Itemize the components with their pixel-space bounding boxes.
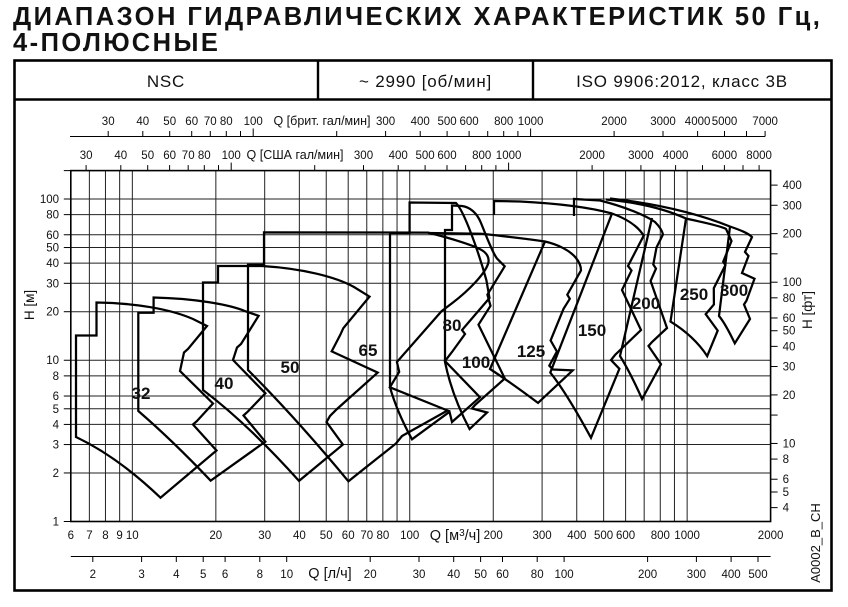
svg-text:30: 30	[102, 116, 115, 128]
svg-text:10: 10	[783, 439, 796, 451]
svg-text:4000: 4000	[663, 150, 689, 162]
svg-text:500: 500	[748, 569, 767, 581]
svg-text:200: 200	[638, 569, 657, 581]
svg-text:40: 40	[46, 258, 59, 270]
svg-text:70: 70	[182, 150, 195, 162]
svg-text:~ 2990 [об/мин]: ~ 2990 [об/мин]	[359, 72, 492, 91]
svg-text:50: 50	[46, 243, 59, 255]
svg-text:60: 60	[185, 116, 198, 128]
svg-text:1000: 1000	[674, 530, 700, 542]
svg-text:100: 100	[555, 569, 574, 581]
svg-text:4: 4	[783, 503, 790, 515]
svg-text:400: 400	[389, 150, 408, 162]
svg-text:30: 30	[413, 569, 426, 581]
svg-text:400: 400	[722, 569, 741, 581]
svg-text:40: 40	[215, 374, 234, 393]
svg-text:70: 70	[360, 530, 373, 542]
svg-text:65: 65	[359, 341, 378, 360]
svg-text:4-ПОЛЮСНЫЕ: 4-ПОЛЮСНЫЕ	[13, 29, 220, 57]
svg-text:3000: 3000	[628, 150, 654, 162]
svg-text:100: 100	[783, 277, 802, 289]
svg-text:125: 125	[517, 342, 545, 361]
svg-text:H [фт]: H [фт]	[800, 291, 815, 329]
svg-text:80: 80	[783, 293, 796, 305]
svg-text:7000: 7000	[752, 116, 778, 128]
svg-text:600: 600	[437, 150, 456, 162]
svg-text:80: 80	[531, 569, 544, 581]
svg-text:2: 2	[53, 468, 59, 480]
svg-text:6: 6	[783, 474, 789, 486]
svg-text:8: 8	[53, 371, 59, 383]
svg-text:9: 9	[116, 530, 122, 542]
svg-text:10: 10	[126, 530, 139, 542]
svg-text:2000: 2000	[758, 530, 784, 542]
svg-text:Q [м3/ч]: Q [м3/ч]	[430, 528, 481, 544]
svg-text:3000: 3000	[650, 116, 676, 128]
svg-text:400: 400	[783, 180, 802, 192]
svg-text:100: 100	[40, 194, 59, 206]
svg-text:20: 20	[783, 390, 796, 402]
svg-text:30: 30	[258, 530, 271, 542]
svg-text:80: 80	[377, 530, 390, 542]
svg-text:5000: 5000	[712, 116, 738, 128]
svg-text:300: 300	[376, 116, 395, 128]
svg-text:300: 300	[783, 200, 802, 212]
svg-text:7: 7	[86, 530, 92, 542]
svg-text:A0002_B_CH: A0002_B_CH	[808, 503, 823, 583]
svg-text:250: 250	[680, 285, 708, 304]
svg-text:6: 6	[53, 391, 59, 403]
svg-text:32: 32	[132, 384, 151, 403]
svg-text:NSC: NSC	[147, 72, 185, 91]
svg-text:150: 150	[578, 321, 606, 340]
svg-text:300: 300	[720, 281, 748, 300]
svg-text:20: 20	[364, 569, 377, 581]
svg-text:300: 300	[533, 530, 552, 542]
svg-text:80: 80	[220, 116, 233, 128]
svg-text:Q [США гал/мин]: Q [США гал/мин]	[247, 148, 344, 162]
svg-text:200: 200	[783, 229, 802, 241]
svg-text:800: 800	[472, 150, 491, 162]
svg-text:30: 30	[783, 362, 796, 374]
svg-text:80: 80	[443, 316, 462, 335]
svg-text:200: 200	[632, 294, 660, 313]
svg-text:500: 500	[438, 116, 457, 128]
svg-text:30: 30	[80, 150, 93, 162]
svg-text:8000: 8000	[746, 150, 772, 162]
svg-text:40: 40	[114, 150, 127, 162]
svg-text:40: 40	[293, 530, 306, 542]
svg-text:400: 400	[411, 116, 430, 128]
svg-text:3: 3	[138, 569, 144, 581]
svg-text:20: 20	[209, 530, 222, 542]
svg-text:8: 8	[257, 569, 263, 581]
svg-text:1000: 1000	[518, 116, 544, 128]
svg-text:ISO 9906:2012, класс 3В: ISO 9906:2012, класс 3В	[576, 72, 788, 91]
svg-text:600: 600	[460, 116, 479, 128]
svg-text:5: 5	[783, 487, 789, 499]
svg-text:1000: 1000	[496, 150, 522, 162]
svg-text:8: 8	[783, 454, 789, 466]
svg-text:60: 60	[342, 530, 355, 542]
svg-text:100: 100	[222, 150, 241, 162]
svg-text:6: 6	[68, 530, 74, 542]
svg-text:H [м]: H [м]	[22, 290, 37, 320]
svg-text:300: 300	[354, 150, 373, 162]
svg-text:300: 300	[687, 569, 706, 581]
svg-text:200: 200	[484, 530, 503, 542]
svg-text:50: 50	[163, 116, 176, 128]
svg-text:2000: 2000	[601, 116, 627, 128]
svg-text:80: 80	[46, 210, 59, 222]
svg-text:Q [брит. гал/мин]: Q [брит. гал/мин]	[273, 114, 370, 128]
svg-text:100: 100	[462, 353, 490, 372]
svg-text:6000: 6000	[712, 150, 738, 162]
svg-text:50: 50	[281, 358, 300, 377]
svg-text:70: 70	[204, 116, 217, 128]
svg-text:100: 100	[400, 530, 419, 542]
svg-text:50: 50	[474, 569, 487, 581]
svg-text:400: 400	[567, 530, 586, 542]
svg-text:10: 10	[46, 355, 59, 367]
svg-text:50: 50	[141, 150, 154, 162]
svg-text:Q [л/ч]: Q [л/ч]	[308, 566, 351, 582]
svg-text:40: 40	[783, 341, 796, 353]
svg-text:4000: 4000	[685, 116, 711, 128]
svg-text:500: 500	[416, 150, 435, 162]
svg-text:40: 40	[136, 116, 149, 128]
svg-text:ДИАПАЗОН ГИДРАВЛИЧЕСКИХ ХАРАКТ: ДИАПАЗОН ГИДРАВЛИЧЕСКИХ ХАРАКТЕРИСТИК 50…	[13, 3, 822, 31]
svg-text:3: 3	[53, 440, 59, 452]
svg-text:60: 60	[163, 150, 176, 162]
svg-text:100: 100	[244, 116, 263, 128]
svg-text:6: 6	[222, 569, 228, 581]
svg-text:60: 60	[46, 230, 59, 242]
svg-text:4: 4	[173, 569, 180, 581]
svg-text:5: 5	[53, 404, 59, 416]
svg-text:800: 800	[651, 530, 670, 542]
svg-text:2: 2	[90, 569, 96, 581]
svg-text:500: 500	[594, 530, 613, 542]
svg-text:10: 10	[280, 569, 293, 581]
svg-text:40: 40	[447, 569, 460, 581]
svg-text:80: 80	[198, 150, 211, 162]
svg-text:8: 8	[102, 530, 108, 542]
svg-text:30: 30	[46, 278, 59, 290]
svg-text:5: 5	[200, 569, 206, 581]
svg-text:600: 600	[616, 530, 635, 542]
svg-text:50: 50	[320, 530, 333, 542]
svg-text:1: 1	[53, 517, 59, 529]
svg-text:60: 60	[783, 313, 796, 325]
svg-text:800: 800	[494, 116, 513, 128]
svg-text:60: 60	[496, 569, 509, 581]
svg-text:20: 20	[46, 307, 59, 319]
svg-text:50: 50	[783, 326, 796, 338]
svg-text:4: 4	[53, 419, 60, 431]
svg-text:2000: 2000	[579, 150, 605, 162]
